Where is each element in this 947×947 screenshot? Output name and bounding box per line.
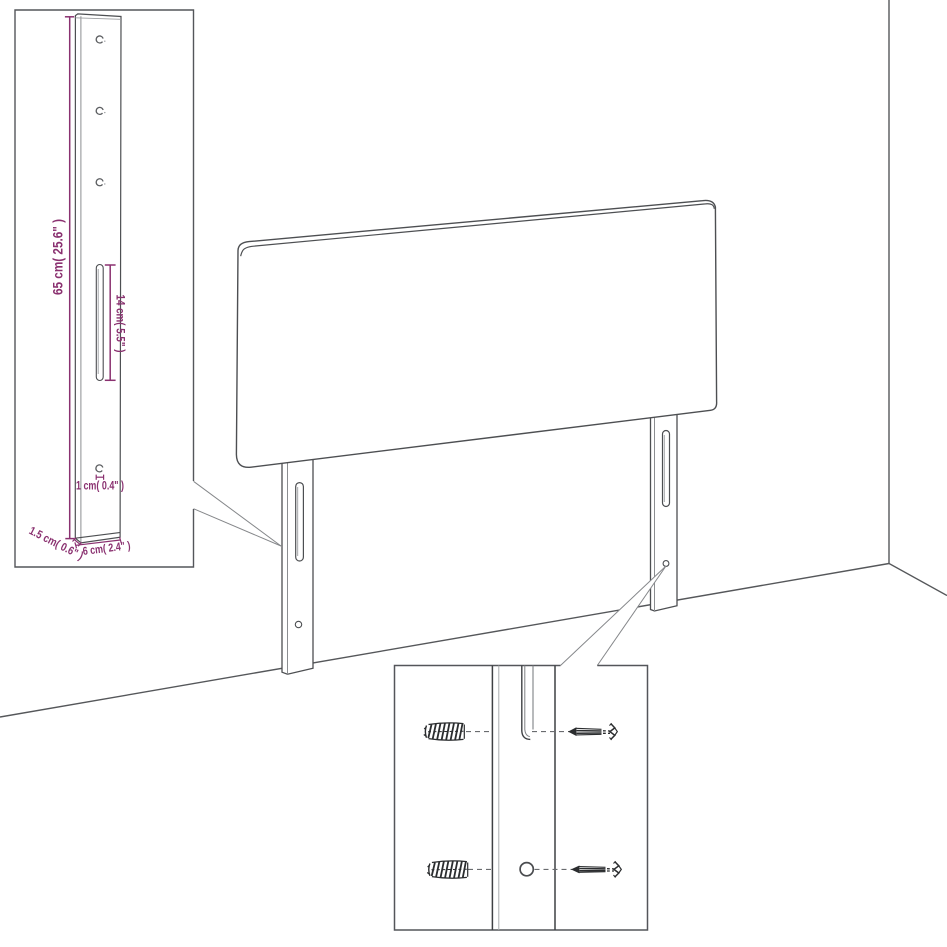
svg-text:65 cm( 25.6" ): 65 cm( 25.6" ) — [50, 219, 66, 295]
svg-text:1 cm( 0.4" ): 1 cm( 0.4" ) — [76, 481, 124, 493]
svg-text:14 cm( 5.5" ): 14 cm( 5.5" ) — [114, 295, 128, 353]
